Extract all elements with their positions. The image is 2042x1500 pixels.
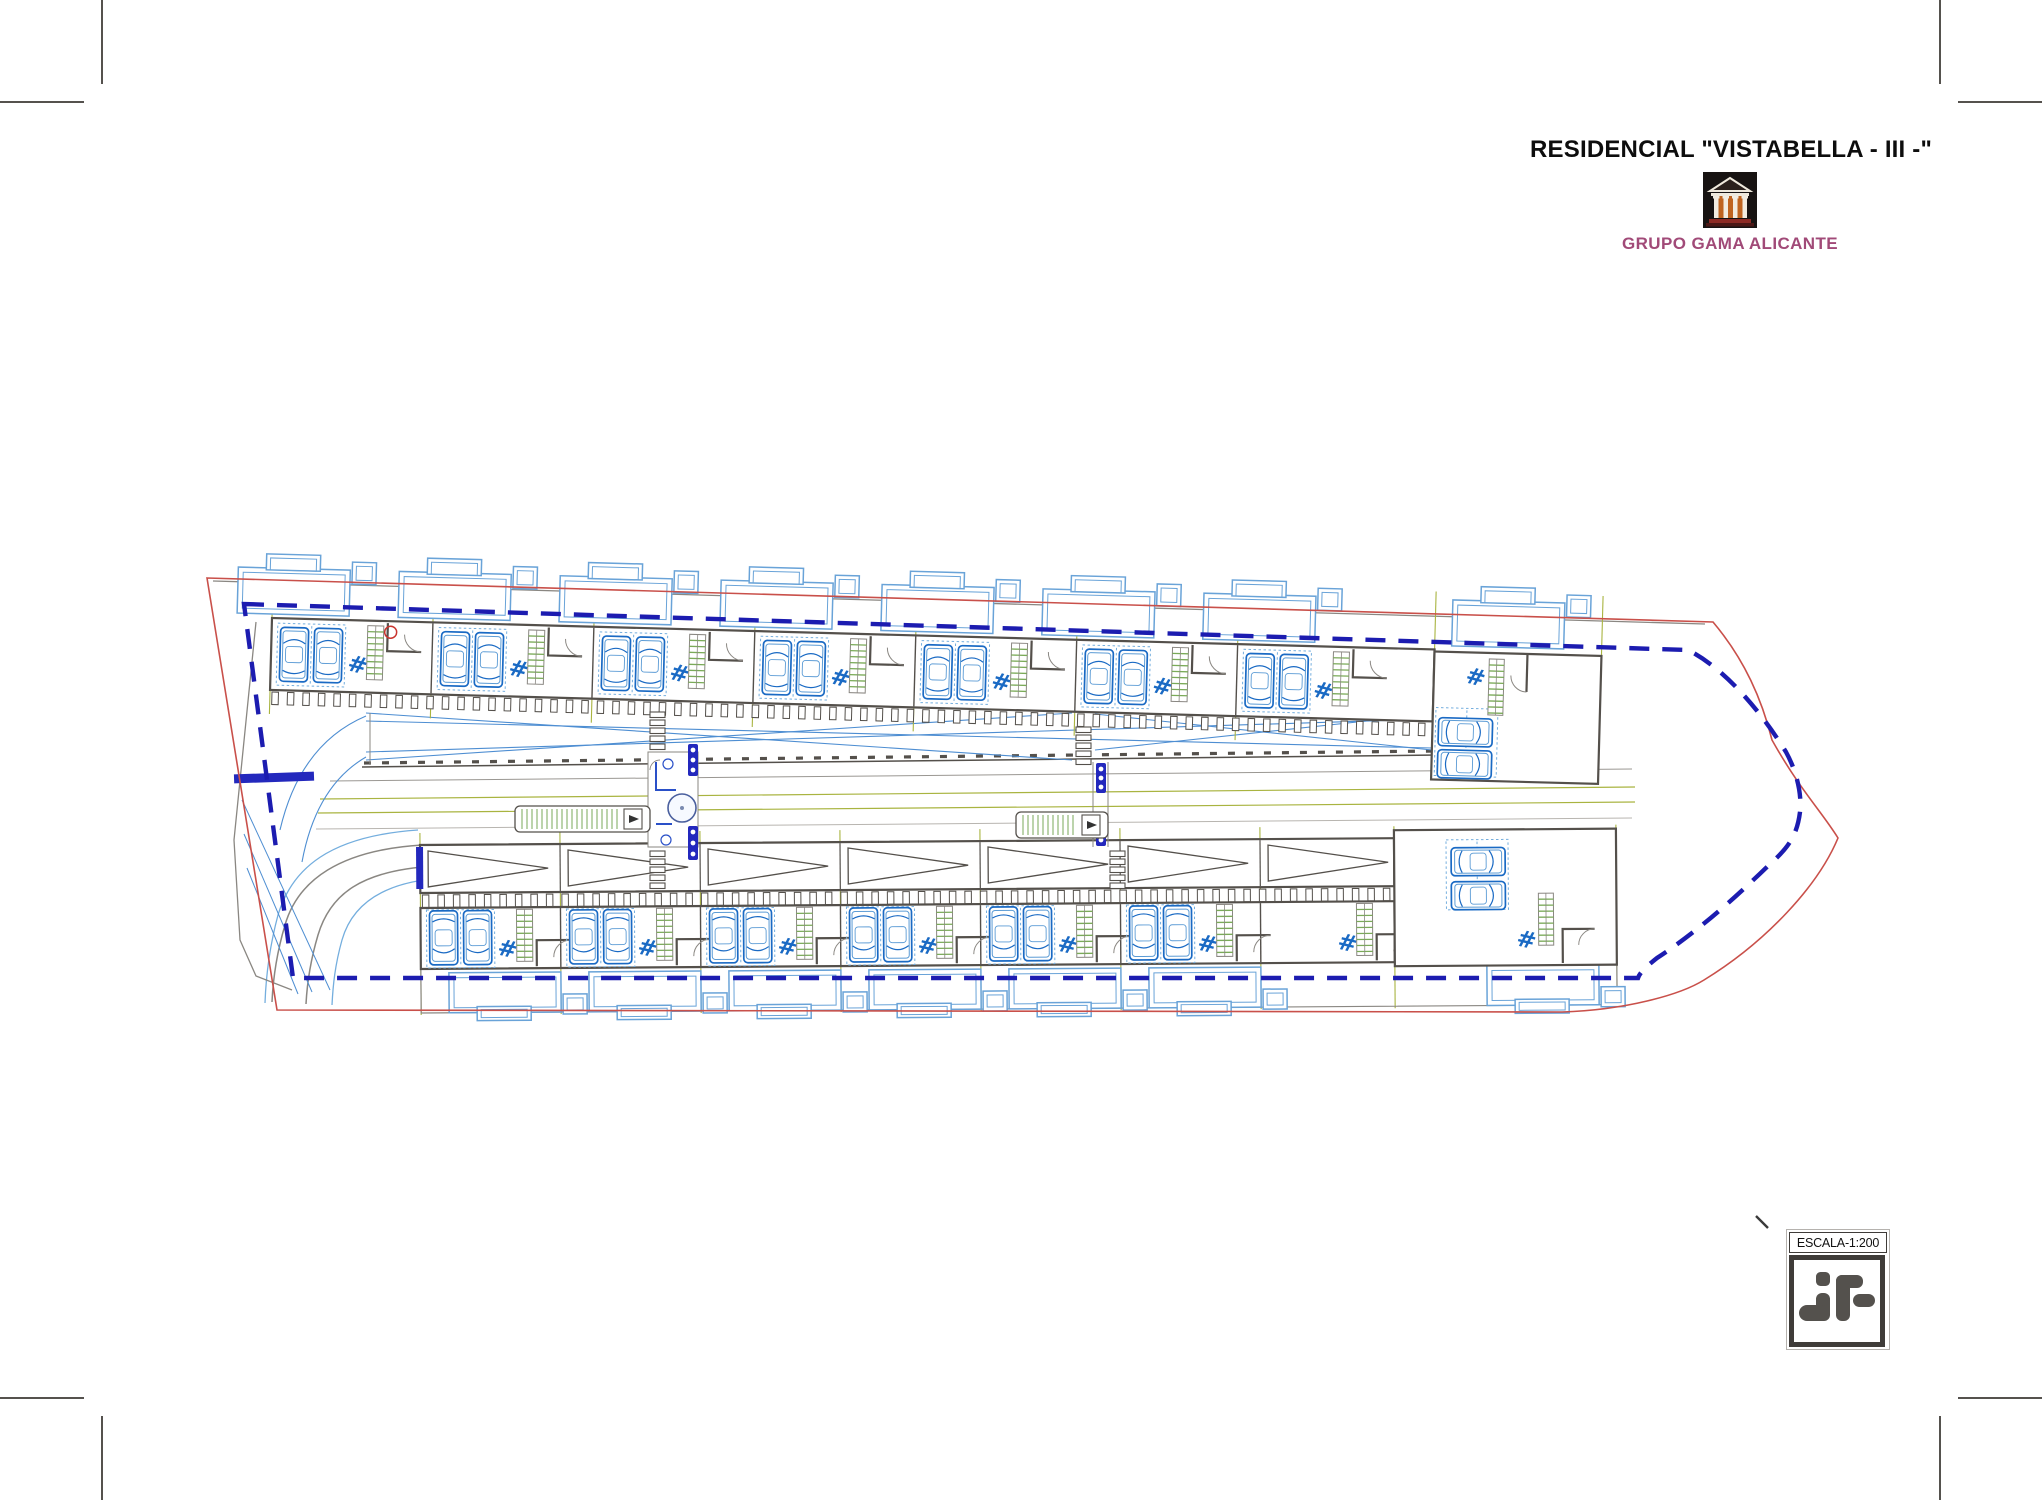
stairs-icon [936,906,952,958]
car-icon [463,911,491,965]
terrace-outline [1009,968,1147,1017]
gate-pillar-icon [1096,763,1106,793]
stairs-icon [1171,647,1188,701]
stairs-icon [1538,893,1553,945]
stairs-icon [656,908,672,960]
car-icon [440,632,469,687]
car-icon [1118,650,1147,705]
pedestrian-crossing-icon [650,851,665,889]
car-icon [1279,654,1308,709]
stairs-icon [1332,652,1349,706]
car-icon [989,907,1017,961]
pedestrian-crossing-icon [1110,851,1125,889]
car-icon [709,909,737,963]
pedestrian-crossing-icon [650,712,665,750]
entrance-gate-bar [234,772,314,784]
car-icon [1438,718,1493,747]
car-icon [635,637,664,692]
pedestrian-crossing-icon [1076,727,1091,765]
drawing-sheet: ################ RESIDENCIAL "VISTABELLA… [0,0,2042,1500]
terrace-outline [1487,965,1625,1014]
stairs-icon [1076,905,1092,957]
car-icon [883,908,911,962]
access-ramp-icon [1016,812,1108,838]
car-icon [474,633,503,688]
stairs-icon [849,639,866,693]
stairs-icon [796,907,812,959]
stairs-icon [1488,659,1505,715]
car-icon [569,910,597,964]
terrace-outline [1149,967,1287,1016]
townhouse-unit-end: # [1394,829,1617,967]
car-icon [1451,881,1505,909]
car-icon [1084,649,1113,704]
car-icon [923,645,952,700]
car-icon [1437,750,1492,779]
company-name: GRUPO GAMA ALICANTE [1530,234,1930,254]
terrace-outline [1042,575,1182,639]
scale-label: ESCALA-1:200 [1789,1232,1887,1253]
title-block: RESIDENCIAL "VISTABELLA - III -" GRUPO G… [1530,136,1930,254]
stairs-icon [1010,643,1027,697]
car-icon [601,636,630,691]
stairs-icon [527,630,544,684]
car-icon [1023,907,1051,961]
car-icon [1451,847,1505,875]
townhouse-unit-end: # [1431,651,1601,783]
gate-pillar-icon [688,826,698,860]
scale-box: ESCALA-1:200 [1786,1229,1890,1350]
car-icon [429,911,457,965]
car-icon [762,640,791,695]
bottom-townhouse-row: ######## [416,825,1625,1021]
car-icon [796,641,825,696]
stairs-icon [688,634,705,688]
gate-pillar-icon [688,744,698,776]
car-icon [279,627,308,682]
car-icon [957,646,986,701]
car-icon [1163,906,1191,960]
project-title: RESIDENCIAL "VISTABELLA - III -" [1530,136,1930,164]
stairs-icon [1356,903,1372,955]
access-ramp-icon [515,806,650,832]
car-icon [743,909,771,963]
stairs-icon [516,909,532,961]
car-icon [603,910,631,964]
stairs-icon [1216,904,1232,956]
car-icon [313,628,342,683]
grupo-gama-logo-icon [1703,172,1757,228]
jf-logo-icon [1789,1255,1887,1347]
car-icon [1245,653,1274,708]
stairs-icon [366,626,383,680]
car-icon [849,908,877,962]
car-icon [1129,906,1157,960]
